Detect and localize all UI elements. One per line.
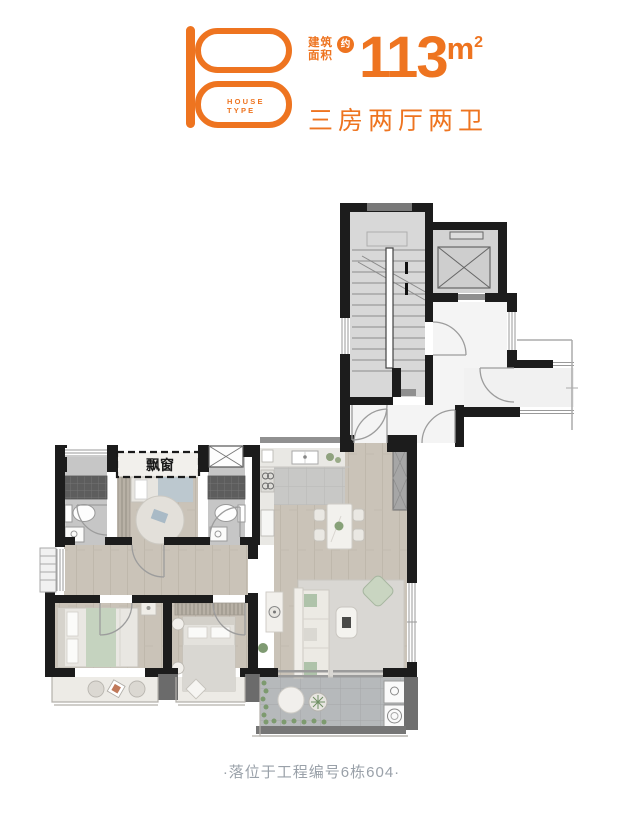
ac-platform	[40, 548, 56, 592]
round-table	[278, 687, 304, 713]
toilet-tank	[65, 505, 72, 522]
bed-pillow	[135, 480, 147, 499]
elevator-door	[458, 294, 485, 300]
floor-plan: 飘窗	[0, 0, 623, 814]
window	[507, 312, 517, 350]
toilet	[73, 505, 95, 522]
bed-blanket	[86, 608, 116, 667]
shower-area	[208, 476, 245, 499]
bay-window-label: 飘窗	[146, 457, 174, 473]
bed-pillow	[211, 627, 230, 638]
window	[407, 583, 417, 662]
laundry-sink	[384, 681, 405, 703]
bed-headboard	[58, 608, 65, 667]
counter-plant	[326, 453, 334, 461]
wardrobe	[118, 477, 130, 543]
shower-area	[65, 476, 107, 499]
dining-chair	[353, 529, 364, 541]
stair-direction-arrow	[405, 283, 408, 295]
sofa-pillow	[304, 662, 317, 675]
dining-chair	[314, 509, 325, 521]
table-plant	[335, 522, 344, 531]
tall-cabinet	[393, 447, 407, 510]
kitchen-floor	[274, 467, 345, 505]
bed-pillow	[67, 639, 78, 663]
stair-handrail	[386, 248, 393, 368]
kitchen-cabinet	[262, 450, 273, 462]
vent-shaft	[209, 446, 243, 467]
dining-chair	[353, 509, 364, 521]
hallway-floor	[64, 545, 248, 595]
window	[340, 318, 350, 354]
pouf	[129, 681, 145, 697]
counter-plant	[335, 457, 341, 463]
pouf	[88, 681, 104, 697]
stair-direction-arrow	[405, 262, 408, 274]
window	[520, 409, 574, 415]
window	[553, 361, 574, 367]
dining-chair	[314, 529, 325, 541]
elevator-counterweight	[450, 232, 483, 239]
window	[65, 448, 107, 457]
wardrobe	[175, 603, 245, 615]
side-table	[172, 618, 184, 630]
sofa-back	[294, 588, 303, 678]
bed-pillow	[188, 627, 207, 638]
bed-headboard	[183, 617, 235, 625]
sofa-pillow	[304, 594, 317, 607]
coffee-table-tray	[342, 617, 351, 628]
sink	[210, 527, 227, 541]
floor-plant	[258, 643, 268, 653]
bed-pillow	[67, 612, 78, 636]
location-caption: ·落位于工程编号6栋604·	[0, 761, 623, 782]
fridge	[261, 510, 274, 536]
sofa-pillow	[304, 628, 317, 641]
